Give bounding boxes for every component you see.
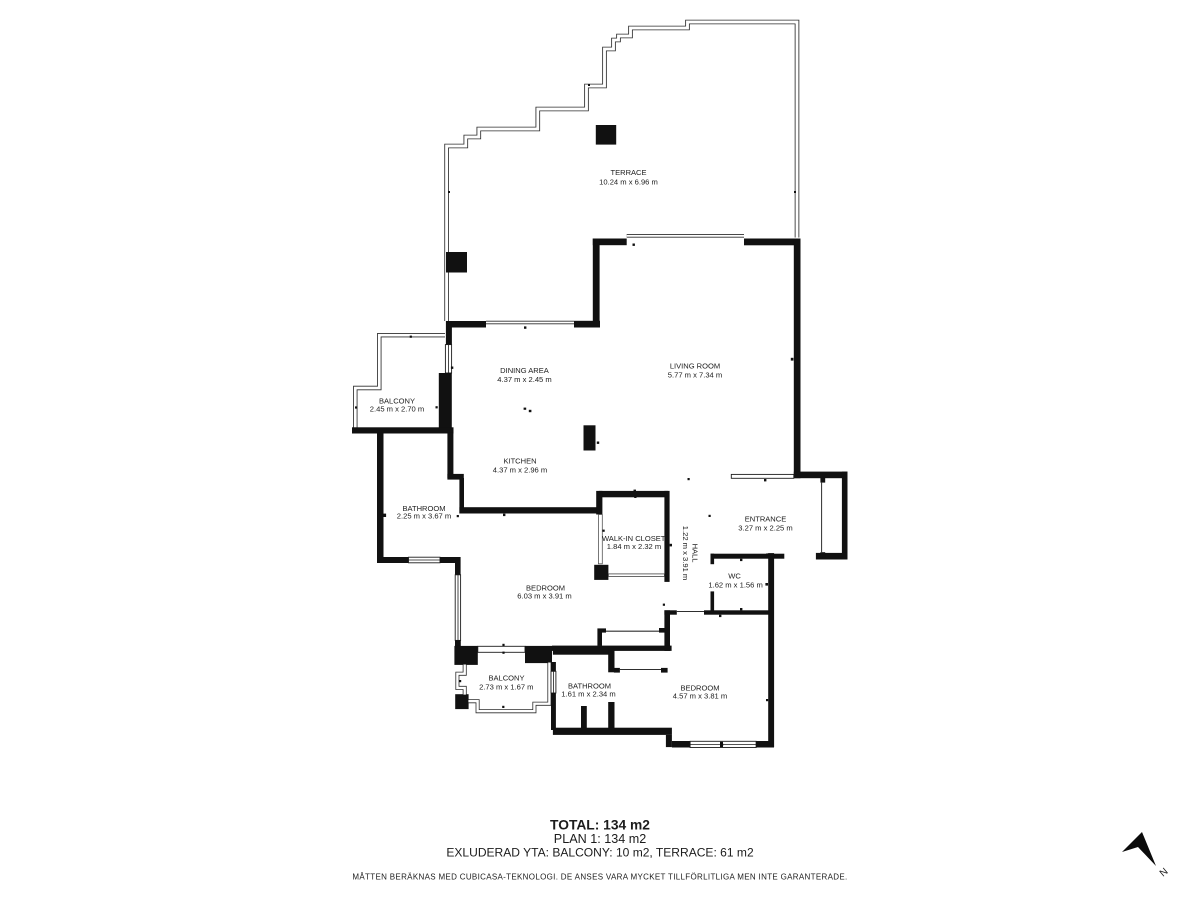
svg-text:BALCONY: BALCONY (488, 674, 524, 683)
svg-text:WC: WC (728, 572, 741, 581)
svg-text:DINING AREA: DINING AREA (500, 366, 550, 375)
svg-text:MÅTTEN BERÄKNAS MED CUBICASA-T: MÅTTEN BERÄKNAS MED CUBICASA-TEKNOLOGI. … (352, 873, 847, 882)
svg-text:2.25 m x 3.67 m: 2.25 m x 3.67 m (397, 512, 451, 521)
svg-text:2.45 m x 2.70 m: 2.45 m x 2.70 m (370, 405, 424, 414)
svg-text:1.84 m x 2.32 m: 1.84 m x 2.32 m (607, 542, 661, 551)
svg-text:2.73 m x 1.67 m: 2.73 m x 1.67 m (479, 683, 533, 692)
svg-text:LIVING ROOM: LIVING ROOM (670, 362, 720, 371)
svg-text:EXLUDERAD YTA: BALCONY: 10 m2,: EXLUDERAD YTA: BALCONY: 10 m2, TERRACE: … (446, 846, 754, 860)
svg-text:5.77 m x 7.34 m: 5.77 m x 7.34 m (668, 371, 722, 380)
svg-text:PLAN 1: 134 m2: PLAN 1: 134 m2 (554, 832, 646, 846)
svg-text:3.27 m x 2.25 m: 3.27 m x 2.25 m (738, 524, 792, 533)
svg-text:4.37 m x 2.45 m: 4.37 m x 2.45 m (497, 375, 551, 384)
svg-text:1.62 m x 1.56 m: 1.62 m x 1.56 m (708, 580, 762, 589)
svg-text:6.03 m x 3.91 m: 6.03 m x 3.91 m (517, 591, 571, 600)
svg-text:TOTAL: 134 m2: TOTAL: 134 m2 (550, 818, 650, 833)
svg-text:ENTRANCE: ENTRANCE (745, 515, 787, 524)
svg-text:4.57 m x 3.81 m: 4.57 m x 3.81 m (673, 691, 727, 700)
svg-text:1.61 m x 2.34 m: 1.61 m x 2.34 m (561, 690, 615, 699)
svg-text:1.22 m x 3.91 m: 1.22 m x 3.91 m (681, 526, 690, 580)
svg-text:10.24 m x 6.96 m: 10.24 m x 6.96 m (599, 177, 658, 186)
svg-text:TERRACE: TERRACE (610, 168, 646, 177)
svg-text:4.37 m x 2.96 m: 4.37 m x 2.96 m (493, 465, 547, 474)
svg-text:KITCHEN: KITCHEN (503, 456, 536, 465)
svg-text:HALL: HALL (691, 544, 700, 563)
